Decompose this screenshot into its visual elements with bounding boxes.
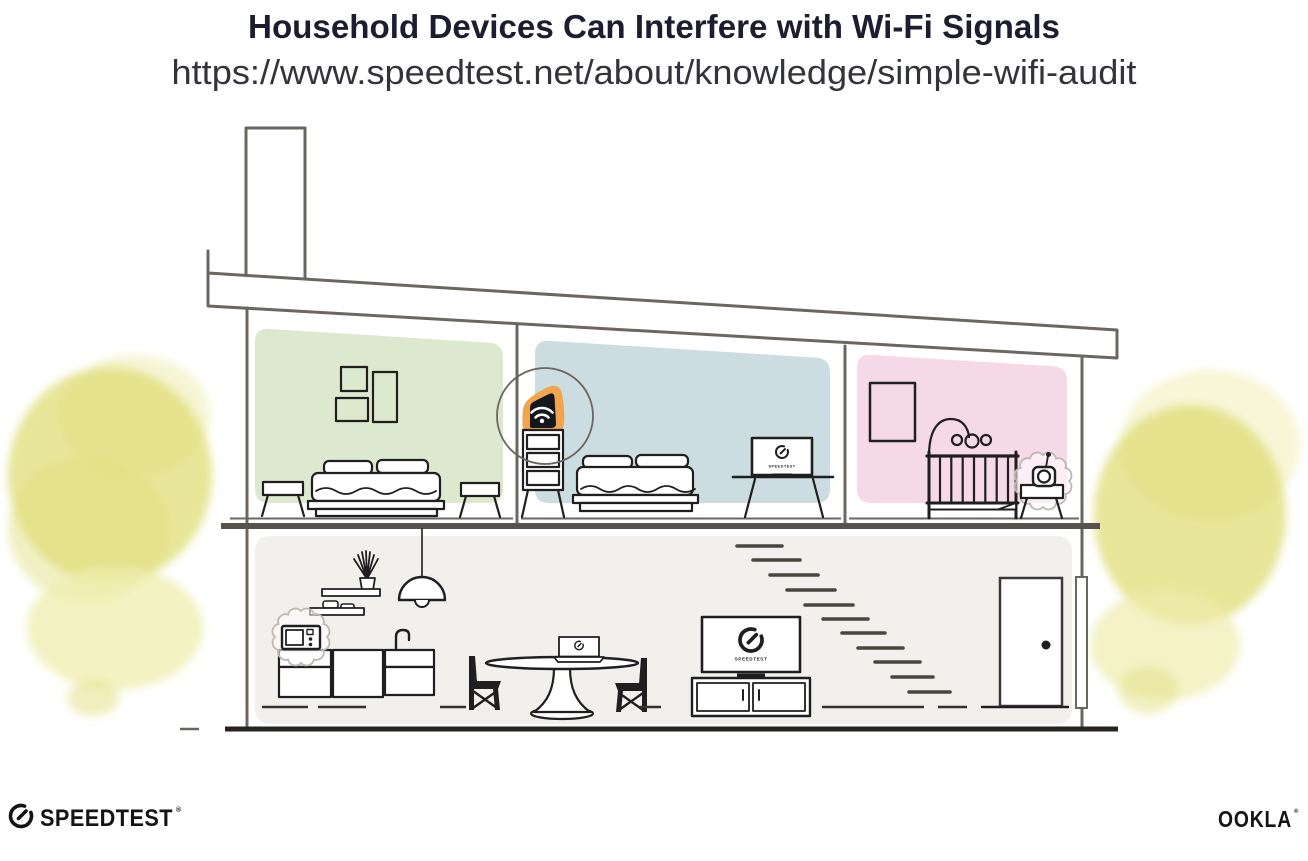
door [1000,578,1062,706]
ookla-logo: OOKLA ® [1218,806,1299,832]
bowl [323,601,338,608]
speedtest-wordmark: SPEEDTEST [40,805,173,832]
pillow [636,455,688,467]
ookla-trademark: ® [1294,808,1299,815]
bed [573,455,698,511]
bed [308,460,444,516]
bedroom-monitor [752,438,812,475]
left-tree [8,355,212,716]
mattress [577,467,693,495]
microwave [282,626,320,649]
tv-area: SPEEDTEST [692,617,810,716]
tv-stand [737,674,765,678]
source-url: https://www.speedtest.net/about/knowledg… [172,54,1138,92]
monitor-stand [772,474,792,477]
speedtest-gauge-icon [11,805,32,826]
chimney [246,128,305,293]
door-knob [1042,641,1051,650]
speedtest-logo: SPEEDTEST ® [11,805,182,832]
page-title: Household Devices Can Interfere with Wi-… [248,8,1060,45]
mattress [312,473,440,501]
tv [702,617,800,672]
monitor-screen-label: SPEEDTEST [768,465,795,469]
right-tree [1090,370,1300,714]
laptop [554,637,604,662]
house-structure [208,128,1117,358]
media-console [692,678,810,716]
downspout [1076,577,1087,708]
infographic-canvas: Household Devices Can Interfere with Wi-… [0,0,1308,861]
dresser [523,430,563,490]
speedtest-trademark: ® [176,806,182,814]
pillow [377,460,428,473]
ookla-wordmark: OOKLA [1218,806,1292,832]
tv-screen-label: SPEEDTEST [735,657,768,662]
house-illustration: Household Devices Can Interfere with Wi-… [0,0,1308,861]
